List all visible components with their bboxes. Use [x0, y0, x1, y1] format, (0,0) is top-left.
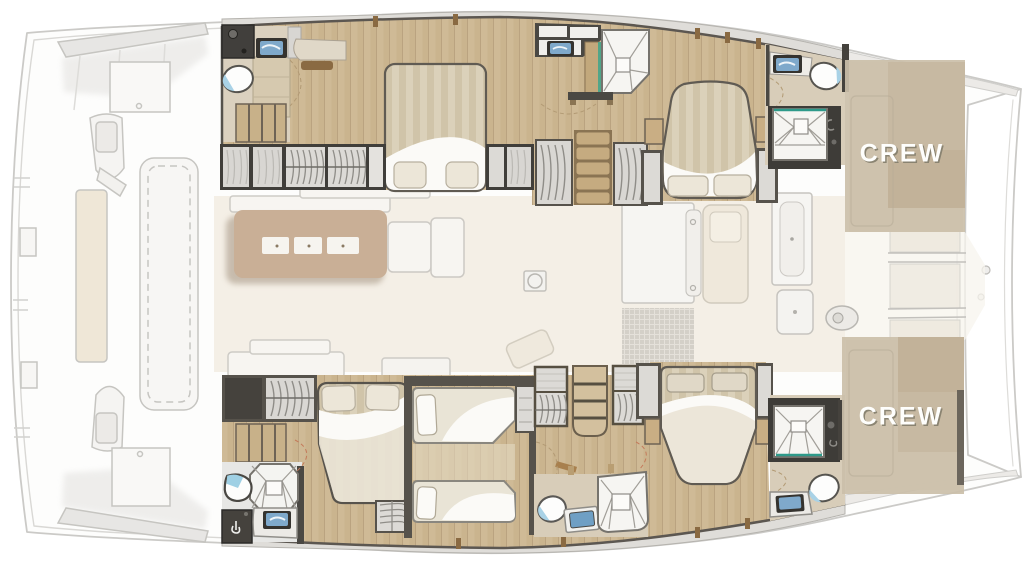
svg-text:CREW: CREW	[860, 140, 944, 168]
svg-text:CREW: CREW	[859, 403, 943, 431]
